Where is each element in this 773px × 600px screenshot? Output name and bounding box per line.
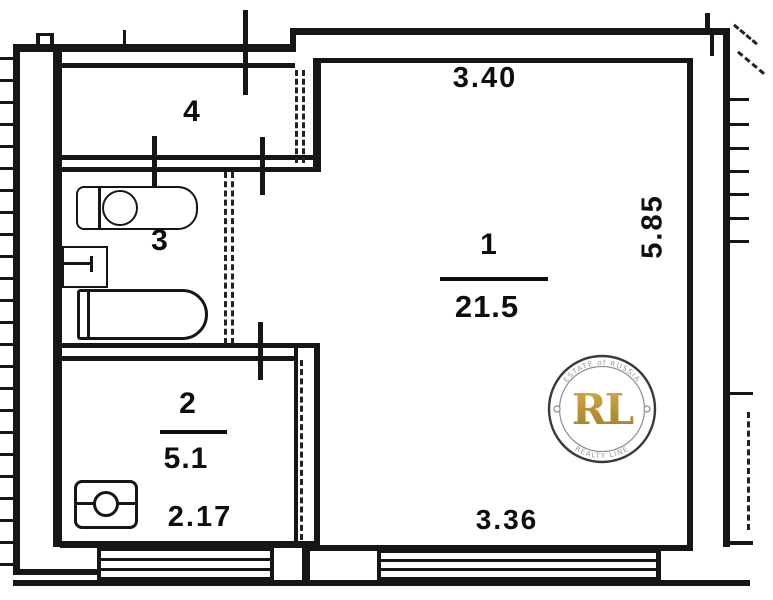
kitchen-right-wall-a — [294, 348, 298, 545]
outer-bottom-line — [13, 580, 750, 586]
redev-marker-hall-left — [152, 136, 157, 193]
top-wall-outer-right — [290, 28, 730, 35]
top-left-notch-c — [36, 33, 54, 36]
window1-line-1 — [97, 548, 273, 551]
window2-line-3 — [377, 568, 660, 571]
window1-line-4 — [97, 577, 273, 580]
right-hatch-tick — [730, 123, 749, 126]
left-hatch-tick — [0, 167, 13, 170]
left-hatch-tick — [0, 519, 13, 522]
bath-bottom-wall-a — [62, 343, 320, 348]
top-right-tick — [705, 13, 710, 31]
dimension-kitchen: 2.17 — [140, 503, 260, 532]
left-hatch-tick — [0, 123, 13, 126]
watermark-monogram: RL — [572, 385, 634, 434]
dimension-right: 5.85 — [639, 169, 668, 285]
hall-bottom-wall-a — [62, 155, 318, 160]
left-wall-outer — [13, 44, 20, 575]
bathtub-icon — [77, 289, 208, 340]
left-hatch-tick — [0, 79, 13, 82]
sink-icon — [62, 246, 108, 288]
room4-number: 4 — [172, 97, 212, 127]
left-hatch-tick — [0, 255, 13, 258]
dimension-top: 3.40 — [425, 64, 545, 93]
window1-jamb-right — [270, 548, 274, 580]
left-hatch-tick — [0, 189, 13, 192]
room2-number: 2 — [168, 389, 208, 419]
window2-jamb-left — [377, 550, 381, 580]
redev-marker-hall-right — [260, 137, 265, 195]
bottom-left-ledge — [13, 569, 97, 575]
room2-fraction-line — [160, 430, 227, 434]
top-left-tick — [123, 30, 126, 46]
balcony-tick-upper — [723, 392, 753, 395]
left-hatch-tick — [0, 365, 13, 368]
window-pier — [302, 541, 310, 581]
redev-marker-kitchen — [258, 322, 263, 380]
right-hatch-tick — [730, 217, 749, 220]
bath-right-wall-dash-b — [231, 172, 234, 344]
toilet-bowl-circle — [102, 190, 138, 226]
left-hatch-tick — [0, 409, 13, 412]
hall-right-wall-dash-a — [295, 70, 298, 163]
watermark-left-dot — [554, 406, 560, 412]
redev-marker-top — [243, 10, 248, 95]
window2-jamb-right — [656, 550, 661, 580]
left-hatch-tick — [0, 277, 13, 280]
left-hatch-tick — [0, 145, 13, 148]
right-hatch-tick — [730, 240, 749, 243]
dimension-bottom: 3.36 — [447, 506, 567, 534]
right-hatch-tick — [730, 98, 749, 101]
window1-jamb-left — [97, 548, 101, 580]
room2-area: 5.1 — [146, 444, 226, 474]
top-wall-step — [290, 28, 296, 52]
window2-line-1 — [377, 550, 660, 553]
watermark-logo: ESTATE of RUSSIA REALTY LINE RL — [546, 353, 658, 465]
watermark-right-dot — [644, 406, 650, 412]
left-hatch-tick — [0, 431, 13, 434]
kitchen-right-wall-dash — [300, 360, 303, 540]
balcony-rail-dash — [747, 412, 750, 530]
left-hatch-tick — [0, 101, 13, 104]
left-hatch-tick — [0, 563, 13, 566]
bath-right-wall-dash-a — [224, 172, 227, 344]
right-wall-inner — [687, 58, 693, 548]
room1-number: 1 — [469, 230, 509, 260]
right-hatch-tick — [730, 193, 749, 196]
hall-bottom-wall-cap — [314, 155, 318, 172]
left-hatch-tick — [0, 57, 13, 60]
top-wall-inner-left — [62, 63, 295, 68]
window2-line-4 — [377, 577, 660, 580]
hall-right-wall-dash-b — [302, 70, 305, 163]
stove-burner-circle — [93, 491, 119, 517]
sink-tap-tick — [90, 256, 93, 272]
floor-plan: 1 21.5 2 5.1 3 4 3.40 5.85 3.36 2.17 EST… — [0, 0, 773, 600]
sink-tap-line — [62, 262, 92, 265]
right-hatch-tick — [730, 170, 749, 173]
left-hatch-tick — [0, 475, 13, 478]
left-hatch-tick — [0, 299, 13, 302]
right-wall-top-stub — [710, 30, 714, 56]
left-hatch-tick — [0, 497, 13, 500]
window2-line-2 — [377, 559, 660, 562]
left-hatch-tick — [0, 211, 13, 214]
right-diagonal-hatch — [737, 51, 765, 75]
left-hatch-tick — [0, 343, 13, 346]
room1-area: 21.5 — [427, 291, 547, 322]
toilet-cistern-line — [98, 188, 101, 228]
room3-number: 3 — [140, 226, 180, 256]
kitchen-bottom-wall — [60, 541, 314, 548]
window1-line-2 — [97, 558, 273, 561]
window1-line-3 — [97, 568, 273, 571]
left-hatch-tick — [0, 387, 13, 390]
left-hatch-tick — [0, 541, 13, 544]
left-wall-inner — [53, 44, 62, 547]
right-hatch-tick — [730, 147, 749, 150]
left-hatch-tick — [0, 233, 13, 236]
hall-bottom-wall-b — [62, 167, 318, 172]
bathtub-inner-line — [87, 291, 90, 338]
kitchen-right-wall-b — [314, 343, 320, 545]
left-hatch-tick — [0, 453, 13, 456]
right-diagonal-hatch — [733, 24, 758, 46]
room1-fraction-line — [440, 277, 548, 281]
balcony-tick-lower — [723, 541, 753, 545]
right-wall-outer — [723, 28, 730, 547]
left-hatch-tick — [0, 321, 13, 324]
